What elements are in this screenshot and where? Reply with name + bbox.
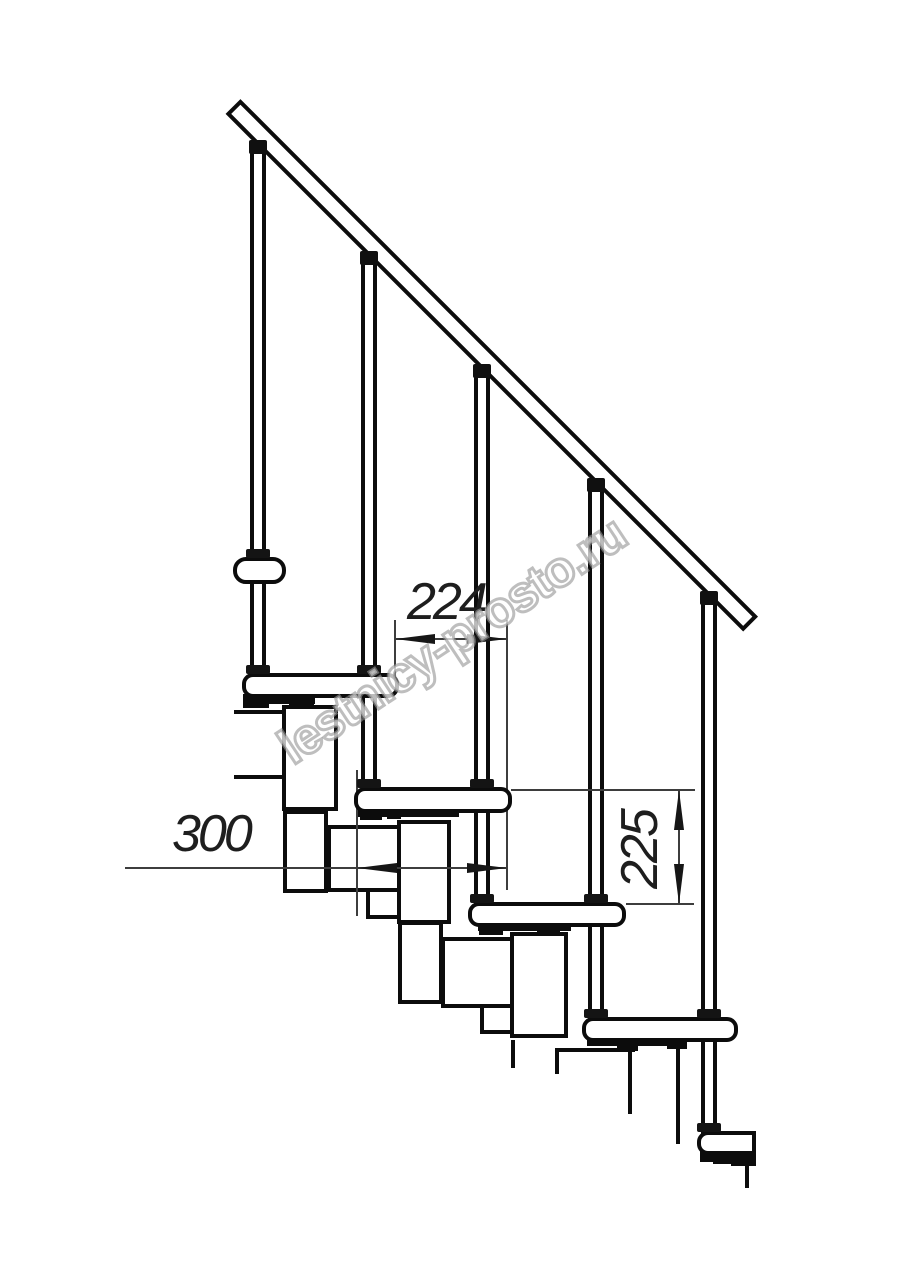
baluster-collar <box>246 549 270 558</box>
module-break-line <box>745 1160 749 1188</box>
module-riser-3 <box>510 932 568 1038</box>
tread-2 <box>354 787 512 813</box>
module-riser-2 <box>397 820 451 924</box>
baluster-collar <box>584 1009 608 1018</box>
dimension-label-225: 225 <box>616 802 664 898</box>
module-lower-1 <box>283 810 328 893</box>
module-body-1 <box>327 825 406 892</box>
module-break-line <box>555 1048 559 1074</box>
baluster-rail-ferrule <box>587 478 605 492</box>
dimension-line <box>125 867 507 869</box>
arrowhead-down-icon <box>674 864 684 904</box>
baluster-collar <box>470 894 494 903</box>
tread-5 <box>697 1131 756 1155</box>
extension-line <box>511 789 695 791</box>
baluster-rail-ferrule <box>473 364 491 378</box>
baluster-rail-ferrule <box>360 251 378 265</box>
module-break-line <box>676 1045 680 1144</box>
tread-3 <box>468 902 626 927</box>
module-break-line <box>234 710 284 714</box>
baluster-collar <box>697 1009 721 1018</box>
watermark-text: lestnicy-prosto.ru <box>267 504 636 776</box>
baluster-collar <box>470 779 494 788</box>
baluster-collar <box>357 779 381 788</box>
tread-0 <box>233 557 286 584</box>
arrowhead-left-icon <box>357 863 397 873</box>
baluster-1 <box>250 148 266 677</box>
baluster-collar <box>584 894 608 903</box>
module-lower-2 <box>398 921 443 1004</box>
baluster-5 <box>701 597 717 1135</box>
baluster-rail-ferrule <box>249 140 267 154</box>
extension-line <box>506 620 508 890</box>
module-body-2 <box>441 937 519 1008</box>
staircase-technical-drawing: 224 300 225 <box>0 0 914 1280</box>
arrowhead-up-icon <box>674 790 684 830</box>
arrowhead-right-icon <box>467 863 507 873</box>
baluster-collar <box>246 665 270 674</box>
baluster-rail-ferrule <box>700 591 718 605</box>
tread-4 <box>582 1017 738 1042</box>
module-break-line <box>628 1051 632 1114</box>
dimension-label-300: 300 <box>172 808 250 860</box>
module-break-line <box>234 775 284 779</box>
handrail <box>226 99 758 631</box>
module-break-line <box>511 1040 515 1068</box>
module-break-line <box>713 1160 749 1164</box>
baluster-collar <box>697 1123 721 1132</box>
